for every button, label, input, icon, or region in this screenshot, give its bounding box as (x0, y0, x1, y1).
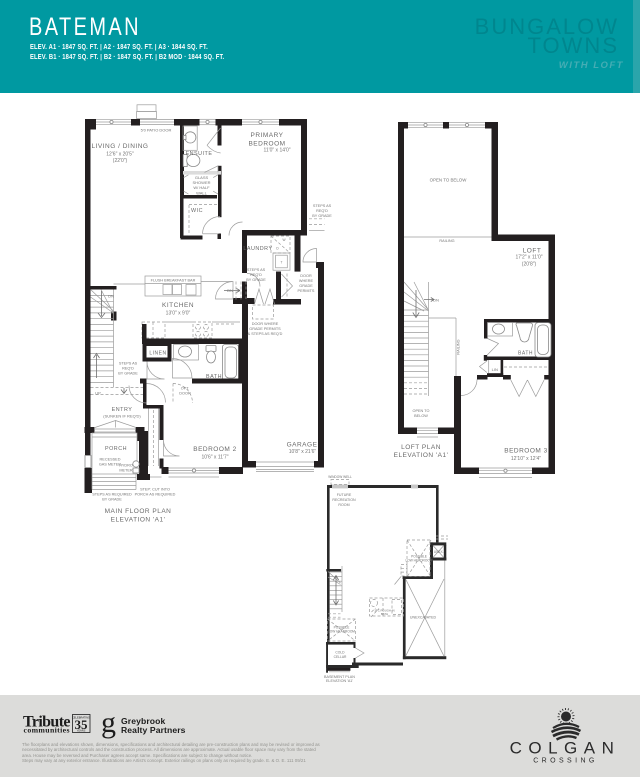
svg-text:RECREATION: RECREATION (332, 498, 356, 502)
svg-text:GRADE PERMITS: GRADE PERMITS (249, 327, 281, 331)
svg-text:BATH: BATH (518, 351, 533, 357)
svg-text:(20'8"): (20'8") (522, 262, 537, 268)
svg-text:DOOR: DOOR (179, 392, 191, 396)
svg-text:RAILING: RAILING (457, 339, 461, 354)
svg-text:PORCH: PORCH (105, 446, 127, 452)
svg-text:WINDOW WELL: WINDOW WELL (328, 475, 352, 479)
svg-text:D: D (276, 247, 279, 251)
svg-text:11'0" x 14'0": 11'0" x 14'0" (263, 148, 290, 154)
svg-text:BEDROOM: BEDROOM (248, 141, 285, 148)
svg-text:g: g (101, 706, 116, 739)
svg-text:OPT.: OPT. (181, 387, 189, 391)
svg-text:OPEN TO BELOW: OPEN TO BELOW (430, 178, 468, 183)
svg-text:BY GRADE: BY GRADE (312, 214, 332, 218)
svg-text:10'8" x 21'6": 10'8" x 21'6" (289, 449, 317, 455)
svg-text:12'6" x 20'5": 12'6" x 20'5" (106, 152, 134, 158)
svg-text:BATH: BATH (206, 374, 222, 380)
svg-text:CELEBRATING: CELEBRATING (72, 716, 90, 720)
svg-text:LIN: LIN (492, 367, 498, 372)
svg-text:RECESSED: RECESSED (100, 458, 121, 462)
svg-text:PORCH AS REQUIRED: PORCH AS REQUIRED (135, 493, 176, 497)
svg-text:REQ'D: REQ'D (250, 273, 262, 277)
svg-text:CELLAR: CELLAR (334, 655, 347, 659)
svg-text:KITCHEN: KITCHEN (162, 302, 194, 309)
svg-text:LOW HEADROOM: LOW HEADROOM (406, 559, 433, 563)
svg-text:RAILING: RAILING (439, 239, 454, 243)
svg-text:ENSUITE: ENSUITE (186, 151, 213, 157)
svg-text:BATH: BATH (381, 612, 388, 616)
svg-text:METER: METER (119, 469, 133, 473)
svg-text:& STEPS AS REQ'D: & STEPS AS REQ'D (248, 332, 283, 336)
svg-text:10'6" x 11'7": 10'6" x 11'7" (201, 455, 228, 461)
svg-text:BELOW: BELOW (414, 414, 428, 418)
svg-text:PERMITS: PERMITS (298, 289, 315, 293)
svg-text:FUTURE: FUTURE (337, 493, 352, 497)
svg-text:BY GRADE: BY GRADE (102, 498, 122, 502)
svg-text:13'0" x 9'0": 13'0" x 9'0" (166, 311, 191, 317)
svg-text:GARAGE: GARAGE (287, 442, 318, 449)
svg-text:UP: UP (95, 391, 101, 396)
svg-text:DN: DN (227, 288, 233, 293)
svg-text:DN: DN (433, 298, 439, 303)
svg-text:communities: communities (24, 726, 70, 735)
svg-text:OPEN TO: OPEN TO (413, 409, 430, 413)
svg-text:(SUNKEN IF REQ'D): (SUNKEN IF REQ'D) (103, 414, 141, 419)
svg-text:5'0 PATIO DOOR: 5'0 PATIO DOOR (141, 128, 172, 133)
svg-text:ENTRY: ENTRY (112, 407, 133, 413)
svg-text:STEPS AS: STEPS AS (313, 204, 332, 208)
svg-text:CROSSING: CROSSING (533, 758, 598, 765)
svg-text:MAIN FLOOR PLAN: MAIN FLOOR PLAN (105, 508, 172, 515)
svg-text:ELEVATION 'A1': ELEVATION 'A1' (111, 517, 166, 524)
svg-text:HYDRO: HYDRO (119, 464, 133, 468)
svg-text:GRADE: GRADE (299, 284, 313, 288)
svg-text:BEDROOM 3: BEDROOM 3 (504, 448, 548, 455)
svg-text:ROOM: ROOM (338, 503, 349, 507)
svg-text:ELEVATION 'A1': ELEVATION 'A1' (394, 452, 449, 459)
svg-text:DOOR: DOOR (300, 274, 312, 278)
svg-text:WHERE: WHERE (299, 279, 314, 283)
svg-text:Realty Partners: Realty Partners (121, 725, 186, 735)
svg-text:LOFT PLAN: LOFT PLAN (401, 444, 441, 451)
svg-text:T: T (281, 261, 283, 265)
svg-text:ELEVATION 'A1': ELEVATION 'A1' (326, 679, 353, 683)
svg-text:STEPS AS REQUIRED: STEPS AS REQUIRED (92, 493, 132, 497)
svg-text:LOFT: LOFT (523, 248, 542, 255)
svg-text:COLGAN: COLGAN (510, 739, 621, 758)
svg-text:(22'0"): (22'0") (113, 158, 128, 164)
svg-text:W: W (282, 238, 285, 242)
svg-text:YEARS: YEARS (77, 729, 86, 733)
svg-text:BEDROOM 2: BEDROOM 2 (193, 446, 237, 453)
svg-text:GAS METER: GAS METER (99, 463, 122, 467)
svg-text:UNEXCAVATED: UNEXCAVATED (410, 616, 437, 620)
svg-text:DN: DN (108, 294, 114, 299)
svg-text:LOW HEADROOM: LOW HEADROOM (328, 630, 355, 634)
svg-text:WALL: WALL (196, 190, 208, 195)
svg-text:STEP: CUT INTO: STEP: CUT INTO (140, 488, 170, 492)
svg-text:LIVING / DINING: LIVING / DINING (92, 143, 149, 150)
svg-text:PRIMARY: PRIMARY (251, 132, 284, 139)
svg-text:12'10" x 12'4": 12'10" x 12'4" (511, 456, 541, 462)
svg-text:LINEN: LINEN (149, 351, 166, 357)
svg-text:LAUNDRY: LAUNDRY (243, 246, 272, 252)
svg-text:BY GRADE: BY GRADE (118, 372, 138, 376)
svg-text:DOOR WHERE: DOOR WHERE (252, 322, 279, 326)
svg-text:BY GRADE: BY GRADE (246, 278, 266, 282)
svg-text:17'2" x 11'0": 17'2" x 11'0" (515, 255, 542, 261)
svg-text:STEPS AS: STEPS AS (119, 362, 138, 366)
svg-text:WIC: WIC (191, 208, 203, 214)
svg-text:REQ'D: REQ'D (316, 209, 328, 213)
svg-text:REQ'D: REQ'D (122, 367, 134, 371)
svg-text:UNEX.: UNEX. (434, 550, 444, 554)
svg-text:FLUSH BREAKFAST BAR: FLUSH BREAKFAST BAR (151, 279, 196, 283)
svg-text:STEPS AS: STEPS AS (247, 268, 266, 272)
